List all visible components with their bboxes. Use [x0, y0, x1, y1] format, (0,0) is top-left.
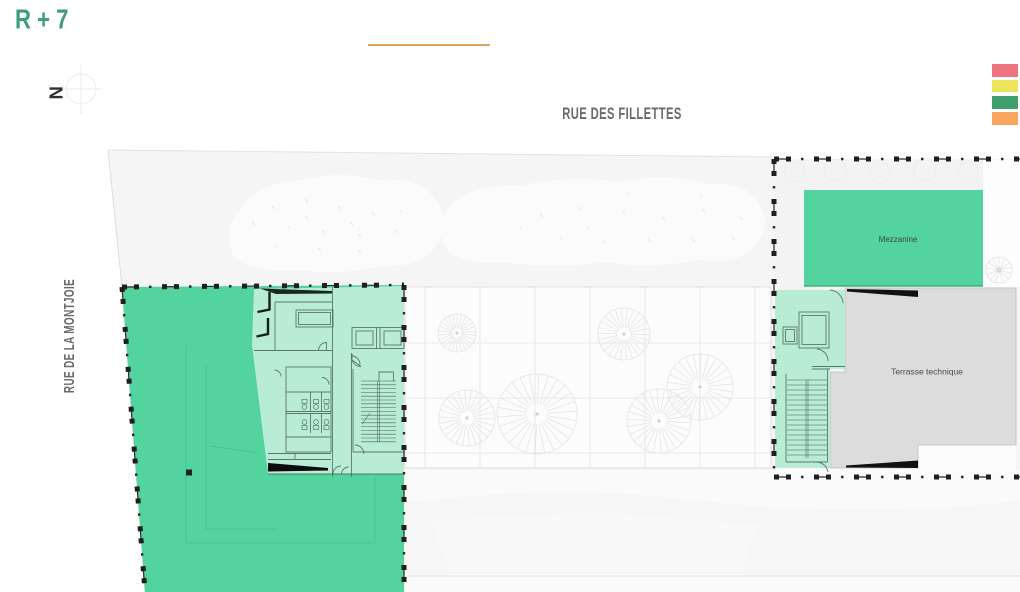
svg-text:R + 7: R + 7 [15, 4, 68, 35]
svg-text:RUE DES FILLETTES: RUE DES FILLETTES [562, 105, 681, 124]
svg-text:N: N [46, 86, 67, 99]
svg-text:Mezzanine: Mezzanine [879, 235, 918, 244]
svg-text:RUE DE LA MONTJOIE: RUE DE LA MONTJOIE [61, 279, 77, 393]
svg-text:Terrasse technique: Terrasse technique [891, 367, 963, 377]
